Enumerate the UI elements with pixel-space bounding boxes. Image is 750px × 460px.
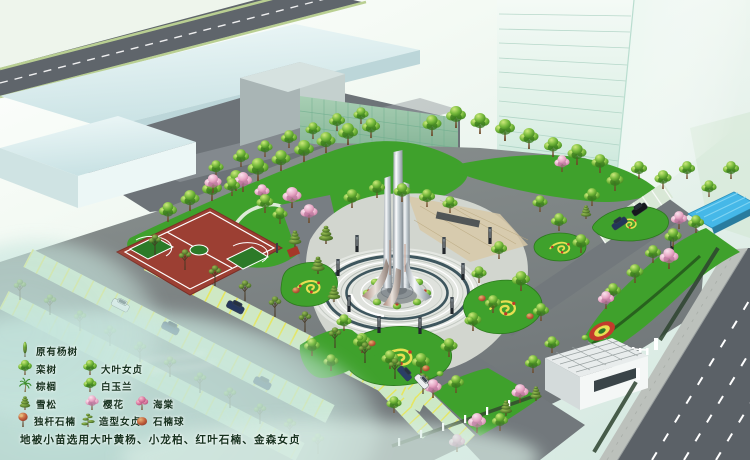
landscape-plan-rendering: 原有杨树 栾树 大叶女贞 棕榈 白玉兰 雪松 樱花 海棠 独杆石楠 造型女贞 石… (0, 0, 750, 460)
site-plan-scene (0, 0, 750, 460)
